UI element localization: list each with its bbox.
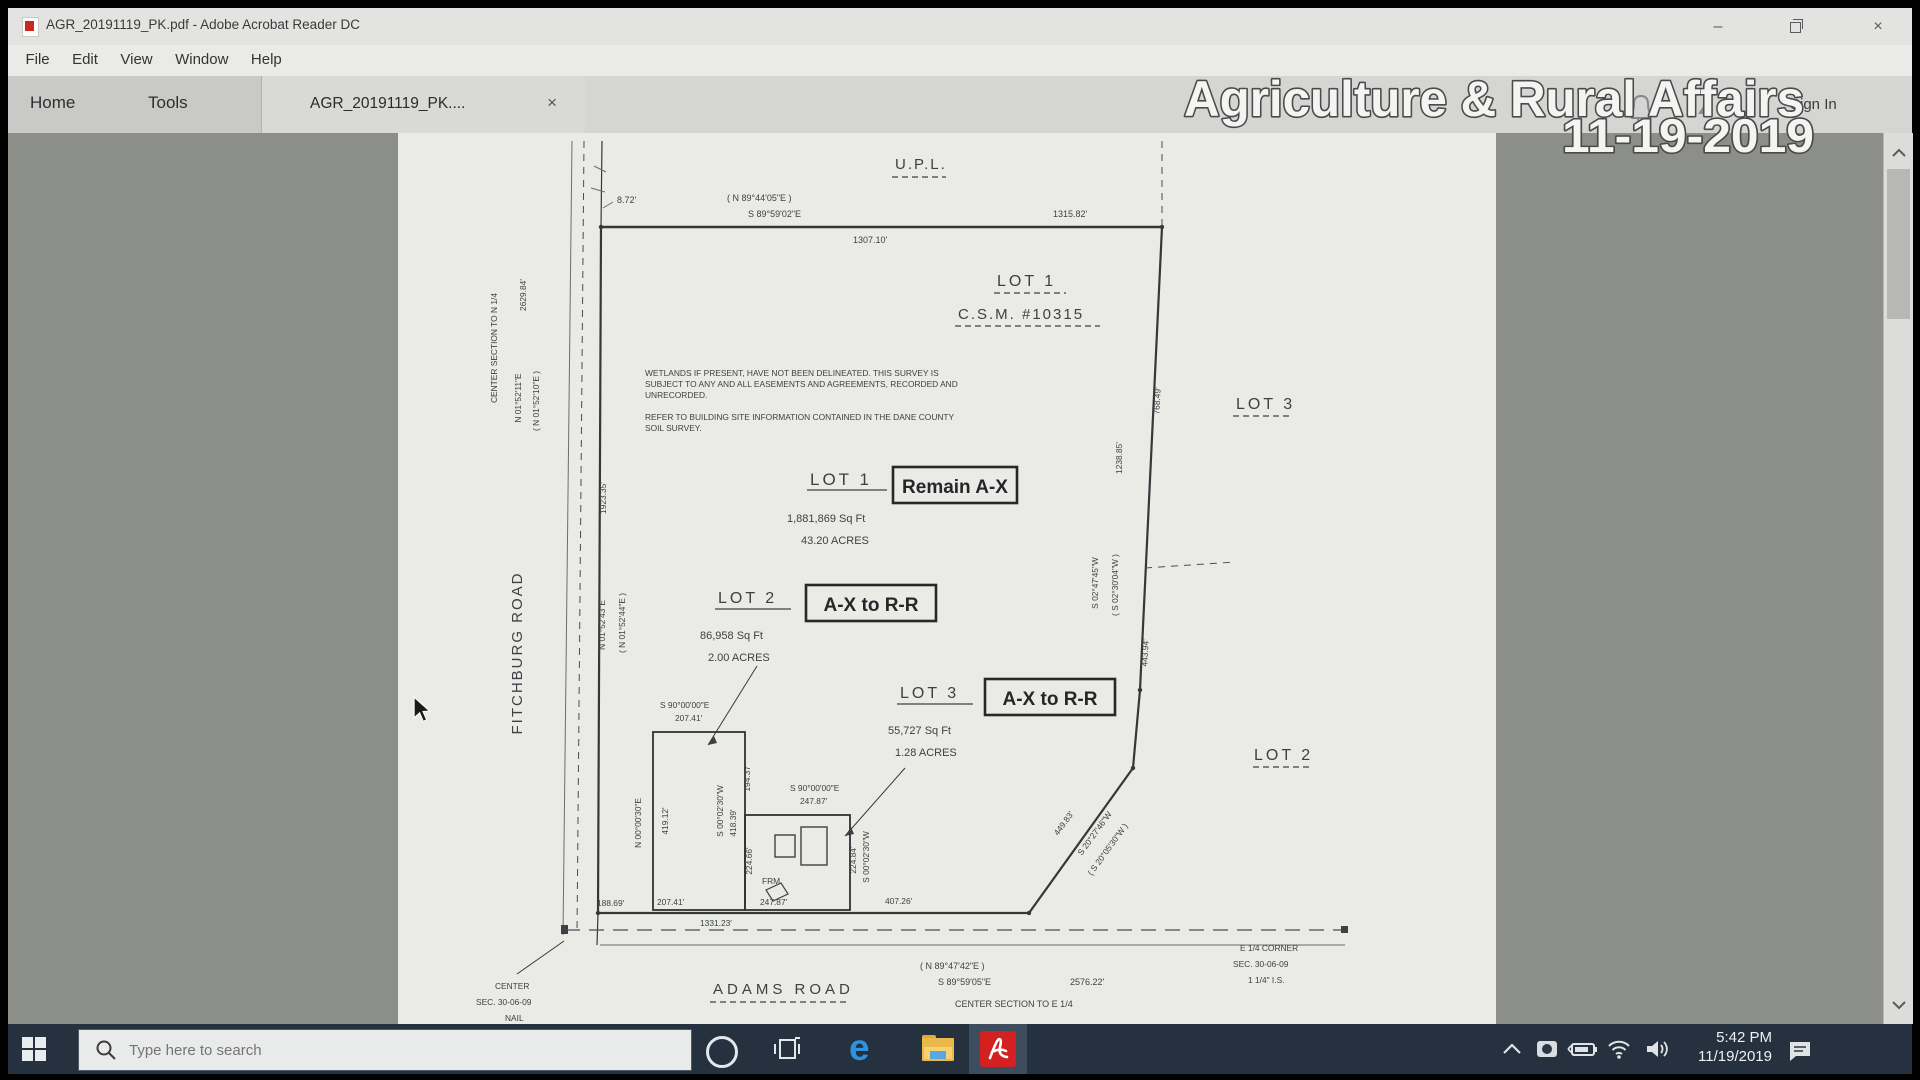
- north-bearing: S 89°59'02"E: [748, 209, 801, 219]
- taskbar-clock[interactable]: 5:42 PM 11/19/2019: [1672, 1028, 1772, 1066]
- scrollbar-thumb[interactable]: [1887, 169, 1910, 319]
- restore-button[interactable]: [1774, 16, 1818, 40]
- clock-date: 11/19/2019: [1672, 1047, 1772, 1066]
- lot3-sqft: 55,727 Sq Ft: [888, 725, 951, 737]
- lot1-title: LOT 1: [810, 470, 872, 489]
- window-title: AGR_20191119_PK.pdf - Adobe Acrobat Read…: [46, 17, 360, 32]
- menu-help[interactable]: Help: [251, 45, 282, 75]
- svg-text:N 01°52'43"E: N 01°52'43"E: [597, 600, 607, 650]
- north-dist-outer: 1315.82': [1053, 209, 1088, 219]
- plat-map: U.P.L. ( N 89°44'05"E ) S 89°59'02"E 131…: [398, 133, 1496, 1024]
- svg-text:SOIL SURVEY.: SOIL SURVEY.: [645, 423, 702, 433]
- svg-text:N 01°52'11"E: N 01°52'11"E: [513, 373, 523, 423]
- svg-text:194.37': 194.37': [742, 764, 752, 792]
- adjacent-lot3: LOT 3: [1236, 396, 1295, 413]
- svg-text:WETLANDS IF PRESENT, HAVE NOT: WETLANDS IF PRESENT, HAVE NOT BEEN DELIN…: [645, 368, 939, 378]
- mouse-cursor: [412, 696, 438, 726]
- svg-text:2629.84': 2629.84': [518, 279, 528, 311]
- sign-in-button[interactable]: Sign In: [1790, 96, 1837, 113]
- bell-icon[interactable]: [1630, 96, 1651, 122]
- south-d1: 188.69': [597, 898, 625, 908]
- svg-text:( S 02°30'04"W ): ( S 02°30'04"W ): [1110, 554, 1120, 616]
- svg-text:768.49': 768.49': [1151, 387, 1162, 415]
- svg-text:SUBJECT TO ANY AND ALL EASEMEN: SUBJECT TO ANY AND ALL EASEMENTS AND AGR…: [645, 379, 958, 389]
- battery-icon[interactable]: [1566, 1039, 1598, 1059]
- south-d4: 407.26': [885, 896, 913, 906]
- file-explorer-icon[interactable]: [922, 1035, 954, 1061]
- lot2rect-top-dist: 207.41': [675, 713, 703, 723]
- survey-notes: WETLANDS IF PRESENT, HAVE NOT BEEN DELIN…: [645, 368, 958, 433]
- start-button-icon[interactable]: [22, 1037, 46, 1061]
- sw-corner-note: CENTER SEC. 30-06-09 NAIL: [476, 981, 532, 1023]
- lot3rect-top-dist: 247.87': [800, 796, 828, 806]
- north-bearing-paren: ( N 89°44'05"E ): [727, 193, 792, 203]
- lot2-title: LOT 2: [718, 590, 777, 607]
- south-bearing-paren: ( N 89°47'42"E ): [920, 961, 985, 971]
- search-input[interactable]: [127, 1041, 651, 1060]
- map-lines: [517, 141, 1348, 1002]
- tab-close-icon[interactable]: ×: [547, 93, 557, 113]
- svg-text:REFER TO BUILDING SITE INFORMA: REFER TO BUILDING SITE INFORMATION CONTA…: [645, 412, 955, 422]
- se-corner-note: E 1/4 CORNER SEC. 30-06-09 1 1/4" I.S.: [1233, 943, 1298, 985]
- svg-text:S 02°47'45"W: S 02°47'45"W: [1090, 557, 1100, 609]
- acrobat-taskbar-button[interactable]: [969, 1024, 1027, 1074]
- lot2-acres: 2.00 ACRES: [708, 652, 770, 664]
- svg-text:443.94': 443.94': [1139, 639, 1150, 667]
- acrobat-icon: [980, 1031, 1016, 1067]
- clock-time: 5:42 PM: [1672, 1028, 1772, 1047]
- svg-text:419.12': 419.12': [660, 807, 670, 835]
- document-pane: U.P.L. ( N 89°44'05"E ) S 89°59'02"E 131…: [8, 133, 1912, 1024]
- south-total: 1331.23': [700, 918, 732, 928]
- svg-text:1923.35': 1923.35': [598, 482, 608, 514]
- south-d3: 247.87': [760, 897, 788, 907]
- edge-browser-icon[interactable]: e: [849, 1031, 870, 1065]
- lot3-title: LOT 3: [900, 685, 959, 702]
- menu-edit[interactable]: Edit: [72, 45, 98, 75]
- lot1-acres: 43.20 ACRES: [801, 535, 869, 547]
- speaker-icon[interactable]: [1644, 1037, 1670, 1061]
- svg-text:S 00°02'30"W: S 00°02'30"W: [861, 831, 871, 883]
- adjacent-lot2: LOT 2: [1254, 747, 1313, 764]
- tab-tools[interactable]: Tools: [148, 93, 188, 113]
- vertical-scrollbar[interactable]: [1883, 133, 1913, 1024]
- wifi-icon[interactable]: [1606, 1037, 1632, 1061]
- lot2-sqft: 86,958 Sq Ft: [700, 630, 763, 642]
- lot2rect-top-bearing: S 90°00'00"E: [660, 700, 710, 710]
- title-bar: AGR_20191119_PK.pdf - Adobe Acrobat Read…: [8, 8, 1912, 46]
- tab-bar: Home Tools AGR_20191119_PK.... × Sign In: [8, 76, 1912, 133]
- tray-app-icon[interactable]: [1534, 1037, 1560, 1061]
- svg-text:224.66': 224.66': [744, 847, 754, 875]
- minimize-button[interactable]: –: [1696, 16, 1740, 40]
- north-dist-inner: 1307.10': [853, 235, 888, 245]
- svg-text:CENTER SECTION TO N 1/4: CENTER SECTION TO N 1/4: [489, 293, 499, 403]
- svg-text:SEC. 30-06-09: SEC. 30-06-09: [476, 997, 532, 1007]
- menu-view[interactable]: View: [120, 45, 152, 75]
- svg-text:449.83': 449.83': [1052, 809, 1076, 837]
- south-d2: 207.41': [657, 897, 685, 907]
- lot2-tag: A-X to R-R: [824, 595, 919, 616]
- acrobat-file-icon: [22, 17, 39, 37]
- frm-label: FRM: [762, 876, 780, 886]
- svg-text:S 00°02'30"W: S 00°02'30"W: [715, 785, 725, 837]
- cortana-icon[interactable]: [706, 1036, 738, 1068]
- scroll-down-icon[interactable]: [1890, 999, 1908, 1011]
- pdf-page: U.P.L. ( N 89°44'05"E ) S 89°59'02"E 131…: [398, 133, 1496, 1024]
- svg-text:CENTER: CENTER: [495, 981, 529, 991]
- lot1-sqft: 1,881,869 Sq Ft: [787, 513, 865, 525]
- task-view-icon[interactable]: [773, 1036, 801, 1062]
- svg-text:1 1/4" I.S.: 1 1/4" I.S.: [1248, 975, 1285, 985]
- south-center-label: CENTER SECTION TO E 1/4: [955, 999, 1073, 1009]
- svg-text:E 1/4 CORNER: E 1/4 CORNER: [1240, 943, 1298, 953]
- csm-name: C.S.M. #10315: [958, 306, 1084, 323]
- svg-text:( N 01°52'10"E ): ( N 01°52'10"E ): [531, 371, 541, 431]
- svg-text:FITCHBURG ROAD: FITCHBURG ROAD: [509, 572, 526, 735]
- south-bearing: S 89°59'05"E: [938, 977, 991, 987]
- lot3-tag: A-X to R-R: [1003, 689, 1098, 710]
- tab-home[interactable]: Home: [30, 93, 75, 113]
- action-center-icon[interactable]: [1786, 1037, 1814, 1063]
- restore-icon: [1790, 22, 1801, 33]
- tab-document[interactable]: AGR_20191119_PK.... ×: [261, 76, 586, 133]
- north-offset: 8.72': [617, 195, 637, 205]
- tray-chevron-icon[interactable]: [1500, 1041, 1524, 1057]
- lot1-tag: Remain A-X: [902, 477, 1008, 498]
- svg-text:UNRECORDED.: UNRECORDED.: [645, 390, 707, 400]
- svg-text:N 00°00'30"E: N 00°00'30"E: [633, 798, 643, 848]
- scroll-up-icon[interactable]: [1890, 147, 1908, 159]
- close-button[interactable]: ×: [1856, 16, 1900, 40]
- svg-text:SEC. 30-06-09: SEC. 30-06-09: [1233, 959, 1289, 969]
- svg-text:1238.85': 1238.85': [1114, 442, 1124, 474]
- adams-road-label: ADAMS ROAD: [713, 981, 854, 998]
- svg-text:418.39': 418.39': [728, 809, 738, 837]
- map-label-upl: U.P.L.: [895, 156, 947, 173]
- toolbar-icons: [1620, 88, 1730, 130]
- document-tab-label: AGR_20191119_PK....: [310, 95, 465, 113]
- svg-text:( N 01°52'44"E ): ( N 01°52'44"E ): [617, 593, 627, 653]
- south-center-dist: 2576.22': [1070, 977, 1105, 987]
- search-icon: [95, 1039, 117, 1061]
- menu-bar: File Edit View Window Help: [8, 45, 1912, 77]
- menu-window[interactable]: Window: [175, 45, 228, 75]
- lot3-acres: 1.28 ACRES: [895, 747, 957, 759]
- taskbar-search[interactable]: [78, 1029, 692, 1071]
- csm-lot-label: LOT 1: [997, 273, 1056, 290]
- menu-file[interactable]: File: [25, 45, 49, 75]
- notice-triangle-icon[interactable]: [1698, 103, 1712, 114]
- svg-text:NAIL: NAIL: [505, 1013, 524, 1023]
- svg-text:224.84': 224.84': [848, 846, 858, 874]
- lot3rect-top-bearing: S 90°00'00"E: [790, 783, 840, 793]
